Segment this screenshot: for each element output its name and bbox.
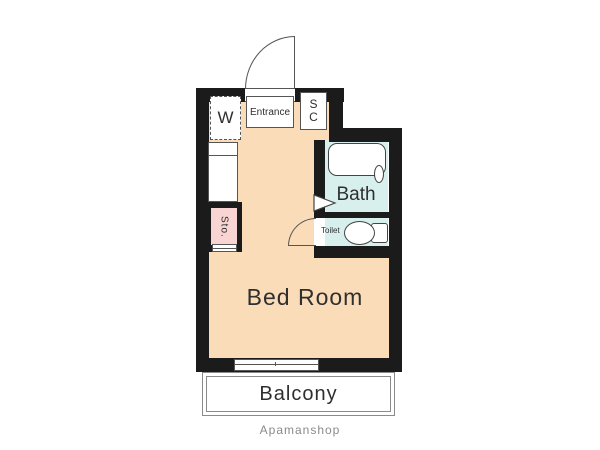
shoe-closet: S C — [300, 92, 327, 130]
washing-machine-space: W — [210, 96, 241, 140]
shoe-closet-label-c: C — [309, 111, 318, 124]
toilet-room-label: Toilet — [321, 226, 340, 235]
entrance-area: Entrance — [246, 96, 294, 128]
bedroom-label: Bed Room — [220, 282, 390, 312]
storage-closet: Sto. — [211, 208, 237, 245]
kitchen-counter — [208, 142, 238, 202]
storage-door — [212, 244, 237, 252]
balcony: Balcony — [202, 372, 395, 416]
bath-door-icon — [313, 194, 337, 212]
sliding-window — [234, 359, 319, 371]
storage-door-line — [213, 248, 236, 249]
bath-faucet — [374, 165, 384, 183]
window-line — [235, 364, 318, 365]
counter-divider — [209, 155, 237, 156]
floor-plan: W Entrance S C Sto. Bath Toilet Bed Room… — [0, 0, 600, 450]
wall-bathwing-bottom — [314, 246, 402, 258]
balcony-label: Balcony — [206, 376, 391, 412]
brand-watermark: Apamanshop — [0, 423, 600, 437]
window-tick — [275, 362, 276, 366]
wall-bath-toilet-divider — [314, 212, 392, 218]
entrance-door-swing-arc — [245, 36, 295, 89]
toilet-bowl — [344, 221, 375, 245]
